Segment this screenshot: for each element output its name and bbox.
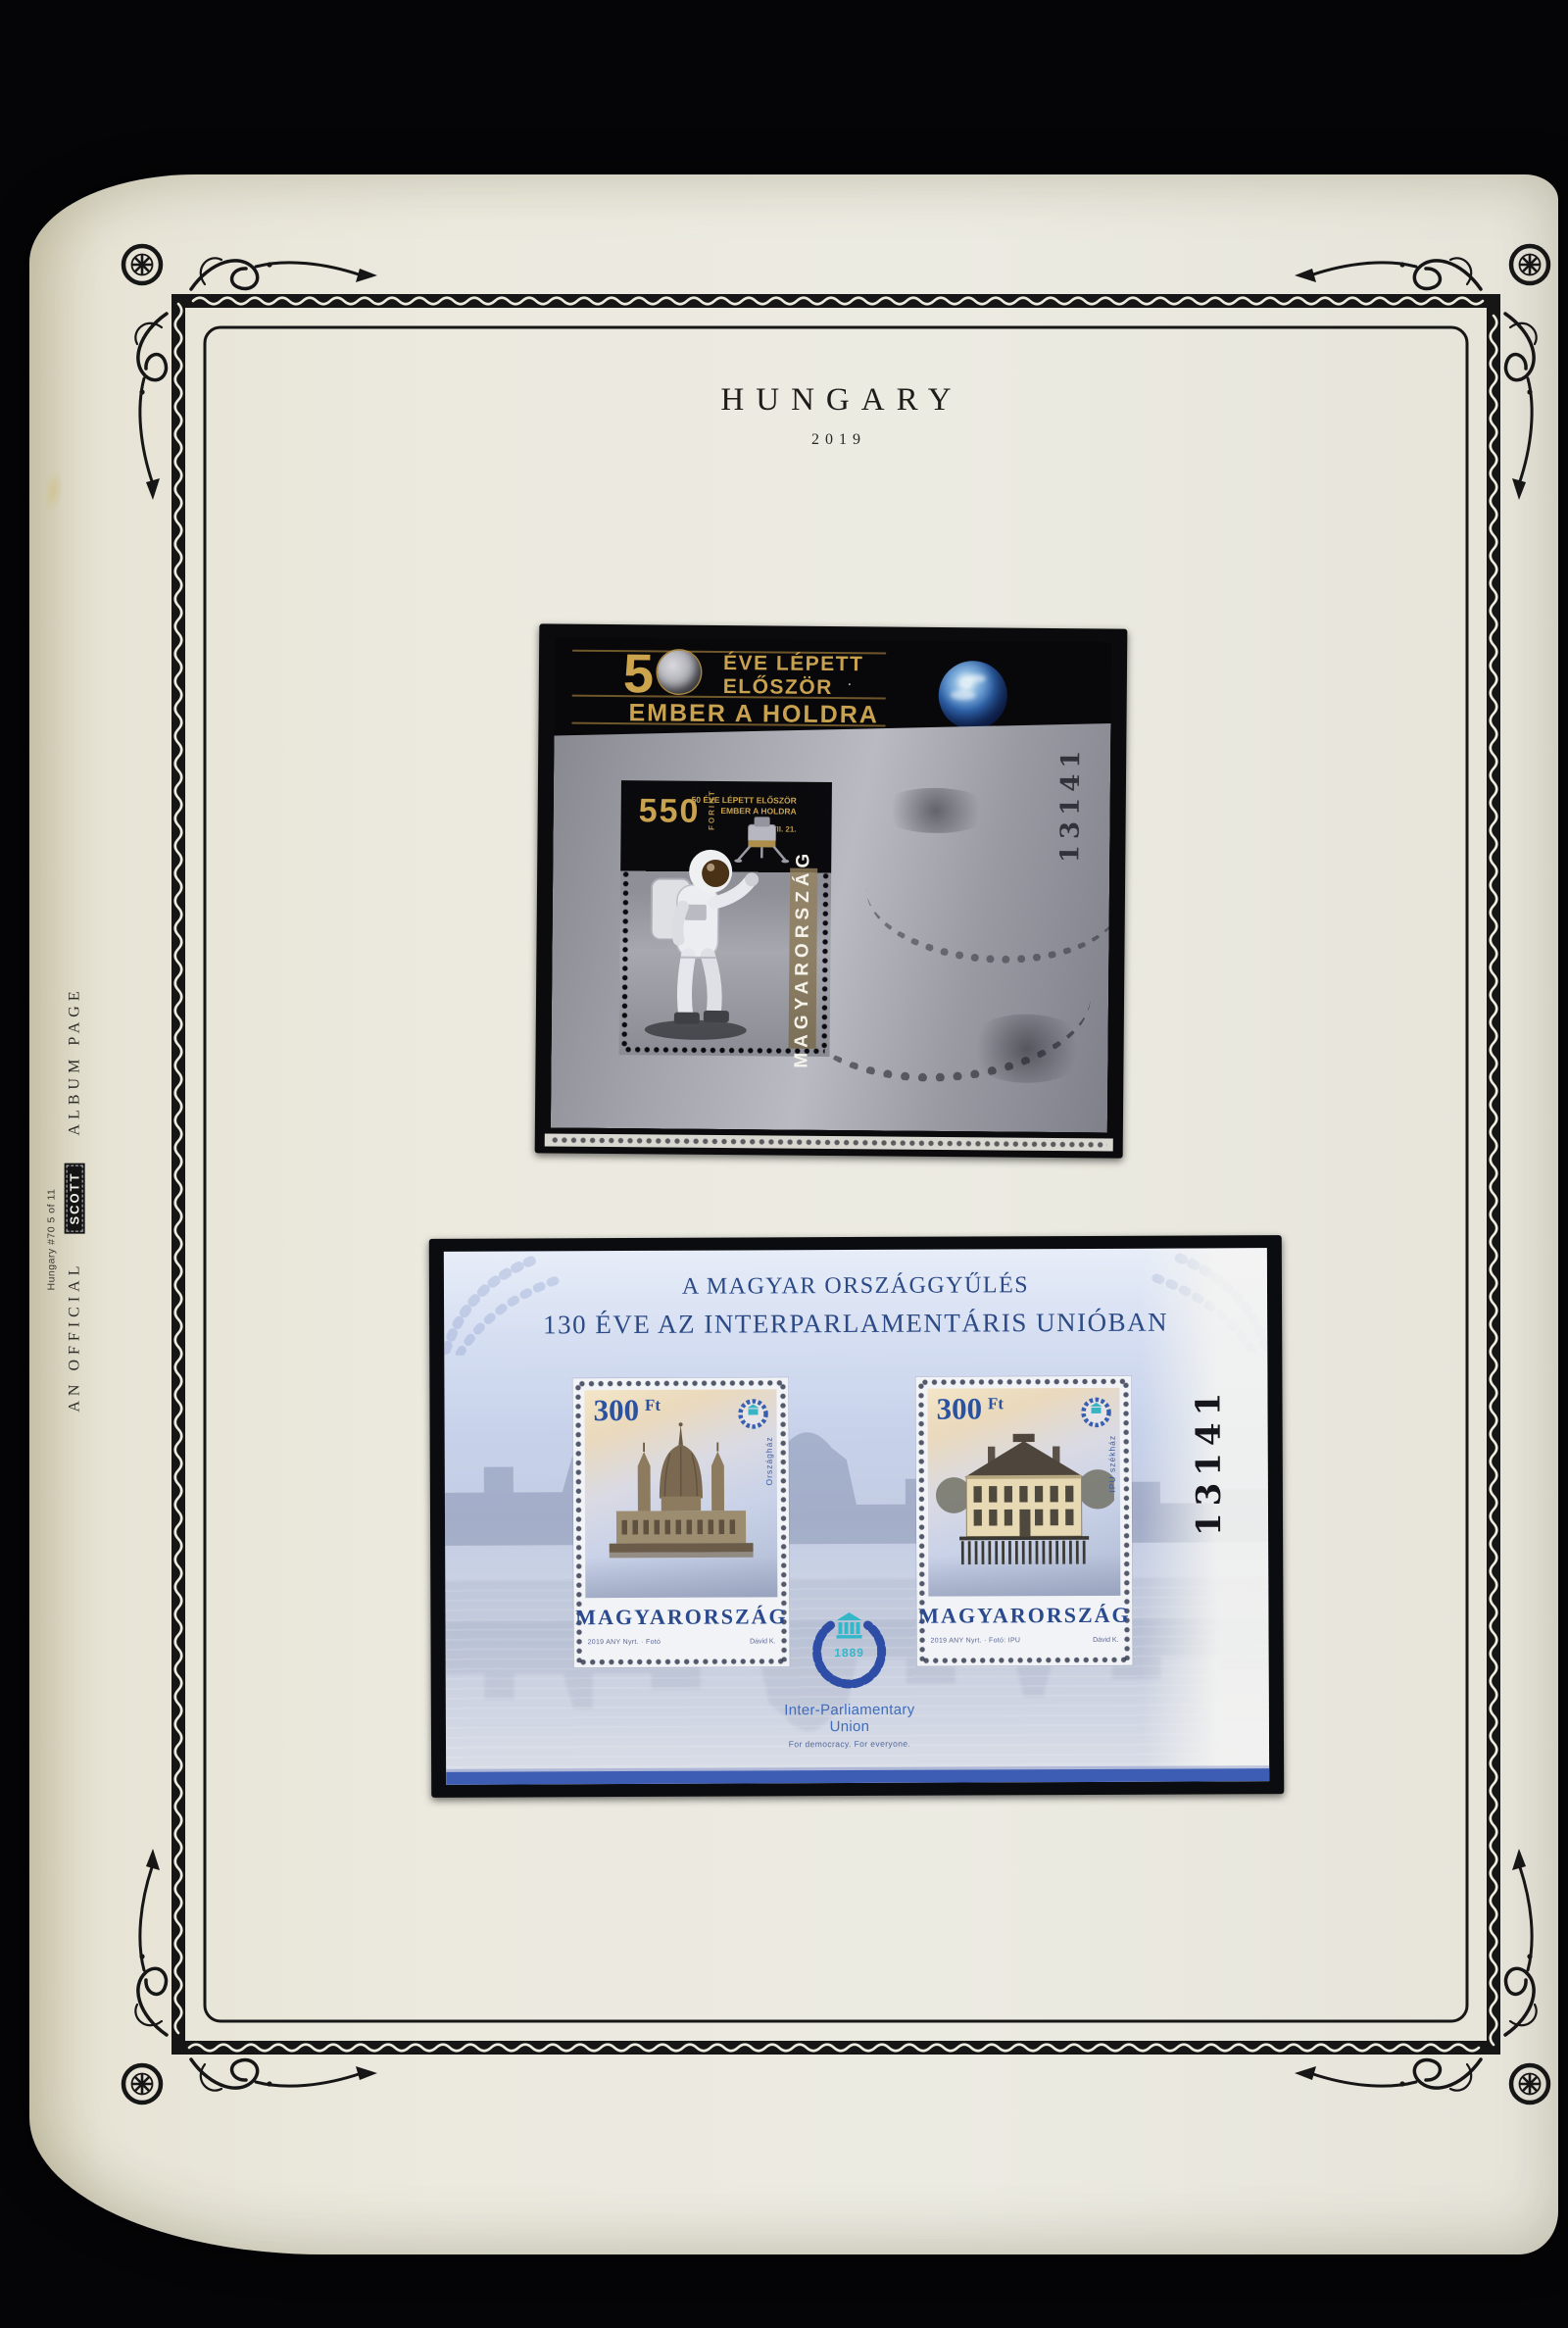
- ipu-souvenir-sheet: A MAGYAR ORSZÁGGYŰLÉS 130 ÉVE AZ INTERPA…: [444, 1248, 1269, 1785]
- stamp-side-label: Országház: [764, 1436, 775, 1563]
- perforation-top: [577, 1378, 783, 1388]
- corner-ornament-bottom-left: [123, 1849, 377, 2103]
- stamp-ipu-headquarters: 300 Ft IPU székház MAGYARORSZÁG 2: [915, 1376, 1132, 1666]
- ipu-mini-logo: [1077, 1393, 1114, 1430]
- perforation-bottom: [922, 1656, 1128, 1665]
- edge-page-ref: Hungary #70 5 of 11: [46, 1074, 58, 1290]
- ipu-tagline: For democracy. For everyone.: [781, 1739, 918, 1750]
- stamp-mount-ipu: A MAGYAR ORSZÁGGYŰLÉS 130 ÉVE AZ INTERPA…: [429, 1235, 1284, 1798]
- stamp-value: 300 Ft: [593, 1395, 661, 1425]
- corner-ornament-top-right: [1295, 246, 1548, 500]
- ipu-mini-logo: [734, 1394, 771, 1431]
- sheet-bottom-band: [446, 1768, 1269, 1785]
- stamp-mount-moon: 5 ÉVE LÉPETT ELŐSZÖR EMBER A HOLDRA: [535, 623, 1128, 1158]
- stamp-designer: Dávid K.: [750, 1638, 775, 1645]
- crater-shadow: [877, 787, 995, 833]
- perforation-right: [820, 787, 831, 1052]
- edge-label: AN OFFICIAL Hungary #70 5 of 11 SCOTT AL…: [47, 949, 102, 1449]
- sheet-title-line2: 130 ÉVE AZ INTERPARLAMENTÁRIS UNIÓBAN: [444, 1307, 1267, 1341]
- stamp-image: 300 Ft IPU székház: [927, 1388, 1120, 1597]
- stamp-parliament: 300 Ft Országház MAGYARORSZÁG 201: [572, 1377, 789, 1667]
- star: [849, 683, 851, 685]
- svg-text:1889: 1889: [834, 1646, 864, 1659]
- parliament-illustration: [591, 1418, 772, 1572]
- country-stripe: MAGYARORSZÁG: [789, 868, 818, 1049]
- scott-logo: SCOTT: [65, 1163, 85, 1233]
- ipu-emblem: 1889 Inter-Parliamentary Union For democ…: [780, 1609, 918, 1750]
- stamp-image: 300 Ft Országház: [584, 1389, 777, 1598]
- photo-of-album-page: HUNGARY 2019 AN OFFICIAL Hungary #70 5 o…: [0, 0, 1568, 2328]
- mansion-illustration: [934, 1417, 1115, 1571]
- edge-album-page: ALBUM PAGE: [66, 986, 83, 1135]
- corner-ornament-bottom-right: [1295, 1849, 1548, 2103]
- album-page: HUNGARY 2019 AN OFFICIAL Hungary #70 5 o…: [29, 174, 1558, 2254]
- page-blemish: [40, 468, 66, 515]
- stamp-designer: Dávid K.: [1093, 1637, 1118, 1644]
- headline-line2: ELŐSZÖR: [723, 676, 833, 698]
- selvage-perforation: [551, 1136, 1107, 1150]
- crater-shadow: [962, 1014, 1091, 1083]
- astronaut-illustration: [639, 841, 768, 1043]
- image-reflection: [585, 1556, 777, 1598]
- perforation-bottom: [579, 1657, 785, 1666]
- page-year: 2019: [171, 431, 1500, 449]
- ipu-wreath-icon: 1889: [804, 1609, 894, 1695]
- stamp-caption: 50 ÉVE LÉPETT ELŐSZÖR EMBER A HOLDRA: [691, 795, 796, 817]
- corner-ornament-top-left: [123, 246, 377, 500]
- image-reflection: [928, 1555, 1120, 1597]
- moon-souvenir-sheet: 5 ÉVE LÉPETT ELŐSZÖR EMBER A HOLDRA: [551, 638, 1111, 1133]
- moon-stamp: 550 FORINT 50 ÉVE LÉPETT ELŐSZÖR EMBER A…: [619, 780, 832, 1057]
- headline-line3: EMBER A HOLDRA: [628, 701, 879, 727]
- stamp-side-label: IPU székház: [1107, 1435, 1118, 1562]
- edge-an-official: AN OFFICIAL: [66, 1261, 83, 1412]
- stamp-imprint: 2019 ANY Nyrt. · Fotó: IPU: [931, 1637, 1021, 1644]
- stamp-country: MAGYARORSZÁG: [791, 849, 814, 1068]
- earth-icon: [938, 661, 1007, 730]
- stamp-imprint: 2019 ANY Nyrt. · Fotó: [588, 1639, 661, 1646]
- stamp-country: MAGYARORSZÁG: [573, 1604, 789, 1630]
- stamp-value: 300 Ft: [936, 1393, 1004, 1423]
- headline-line1: ÉVE LÉPETT: [723, 653, 864, 674]
- sheet-serial-number: 13141: [1055, 745, 1086, 863]
- headline-50: 5: [623, 646, 702, 702]
- page-title: HUNGARY: [171, 382, 1500, 419]
- sheet-selvage: [545, 1133, 1113, 1151]
- perforation-left: [620, 785, 631, 1050]
- ipu-org-name: Inter-Parliamentary Union: [781, 1702, 918, 1736]
- perforation-top: [920, 1377, 1126, 1387]
- stamp-country: MAGYARORSZÁG: [916, 1603, 1132, 1629]
- sheet-title-line1: A MAGYAR ORSZÁGGYŰLÉS: [444, 1271, 1267, 1302]
- perforation-top: [626, 781, 827, 792]
- sheet-serial-number: 13141: [1189, 1362, 1229, 1559]
- moon-zero-icon: [658, 650, 701, 693]
